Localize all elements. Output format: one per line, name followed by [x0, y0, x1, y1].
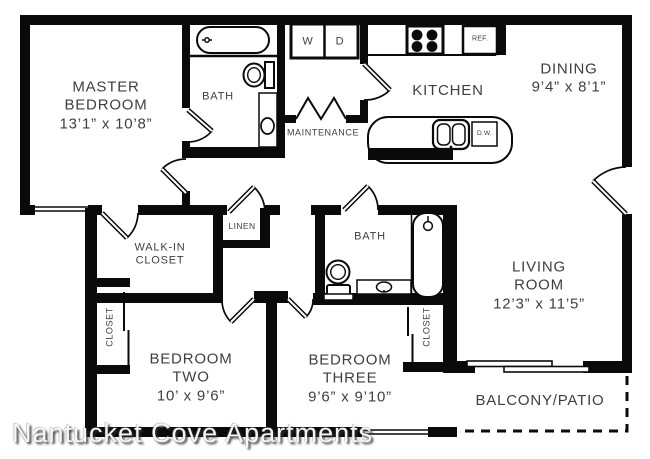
- master-bedroom-dimensions: 13’1” x 10’8”: [60, 115, 153, 133]
- master-bath-tub-icon: [197, 27, 269, 53]
- bedroom-two-dimensions: 10’ x 9’6”: [149, 387, 232, 405]
- dining-label: DINING 9’4” x 8’1”: [532, 61, 607, 98]
- master-bedroom-label: MASTER BEDROOM 13’1” x 10’8”: [60, 79, 153, 134]
- sliding-glass-door: [467, 361, 589, 372]
- bedroom-two-closet-label: CLOSET: [105, 307, 116, 347]
- walk-in-closet-door: [102, 213, 138, 238]
- dishwasher-label: D.W.: [477, 130, 492, 138]
- living-room-label: LIVING ROOM 12’3” x 11’5”: [493, 259, 585, 314]
- master-bath-toilet-icon: [244, 62, 275, 88]
- living-room-dimensions: 12’3” x 11’5”: [493, 295, 585, 313]
- dryer-label: D: [336, 35, 345, 48]
- linen-label: LINEN: [228, 221, 255, 231]
- linen-closet-door: [229, 187, 265, 212]
- bedroom-three-closet-label: CLOSET: [422, 307, 433, 347]
- master-bedroom-door: [162, 159, 186, 193]
- kitchen-door: [364, 64, 390, 100]
- bedroom-three-dimensions: 9’6” x 9’10”: [308, 388, 392, 406]
- floor-plan: MASTER BEDROOM 13’1” x 10’8” BATH W D RE…: [0, 0, 650, 459]
- stove-icon: [407, 26, 443, 54]
- bedroom-three-door: [288, 299, 313, 317]
- master-bath-door: [188, 110, 212, 142]
- hall-bath-tub-icon: [413, 213, 443, 297]
- hall-bath-vanity-icon: [357, 280, 411, 294]
- dining-dimensions: 9’4” x 8’1”: [532, 79, 607, 97]
- watermark: Nantucket Cove Apartments: [12, 418, 373, 449]
- bedroom-two-label: BEDROOM TWO 10’ x 9’6”: [149, 351, 232, 406]
- balcony-patio-label: BALCONY/PATIO: [475, 392, 604, 410]
- maintenance-label: MAINTENANCE: [287, 128, 359, 139]
- master-bath-vanity-icon: [259, 93, 277, 147]
- refrigerator-label: REF.: [472, 36, 488, 45]
- walk-in-closet-label: WALK-IN CLOSET: [134, 242, 185, 269]
- master-bedroom-window: [35, 207, 88, 211]
- entry-door: [593, 167, 626, 214]
- bedroom-three-label: BEDROOM THREE 9’6” x 9’10”: [308, 352, 392, 407]
- kitchen-sink-icon: [433, 120, 469, 149]
- bedroom-three-closet-doors: [408, 307, 413, 362]
- washer-label: W: [302, 35, 313, 48]
- hall-bath-door: [344, 186, 378, 210]
- bedroom-two-door: [222, 299, 254, 322]
- kitchen-label: KITCHEN: [412, 82, 483, 100]
- hall-bath-label: BATH: [354, 230, 386, 243]
- maintenance-bifold-door: [296, 98, 346, 119]
- master-bath-label: BATH: [202, 90, 234, 103]
- washer-dryer-box: [291, 24, 358, 58]
- hall-bath-toilet-icon: [324, 261, 353, 301]
